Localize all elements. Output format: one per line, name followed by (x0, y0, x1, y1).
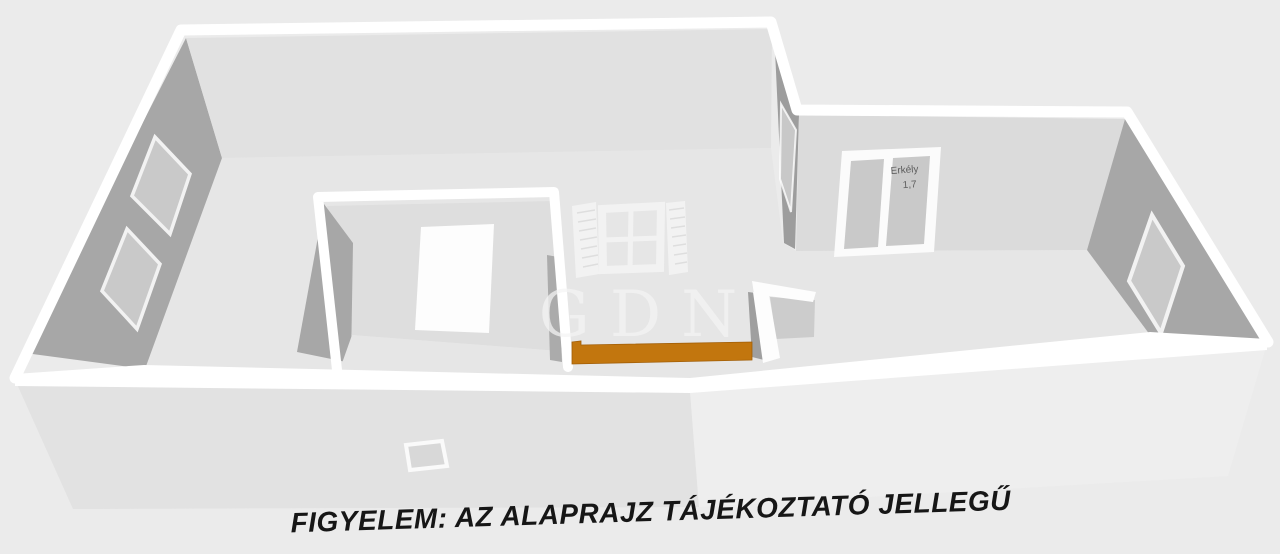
stub-wall-inner-face (770, 297, 815, 339)
facade-vent-square (406, 441, 447, 470)
watermark-text: GDN (539, 278, 757, 352)
front-facade-left (16, 382, 699, 509)
floorplan-svg: Erkély 1,7 GDN FIGYELEM: AZ ALAPRAJZ TÁJ… (0, 0, 1280, 554)
back-wall-left (186, 29, 772, 158)
balcony-label-name: Erkély (890, 164, 918, 177)
floorplan-render: Erkély 1,7 GDN FIGYELEM: AZ ALAPRAJZ TÁJ… (0, 0, 1280, 554)
interior-door (415, 224, 494, 333)
balcony-label-area: 1,7 (902, 179, 917, 191)
